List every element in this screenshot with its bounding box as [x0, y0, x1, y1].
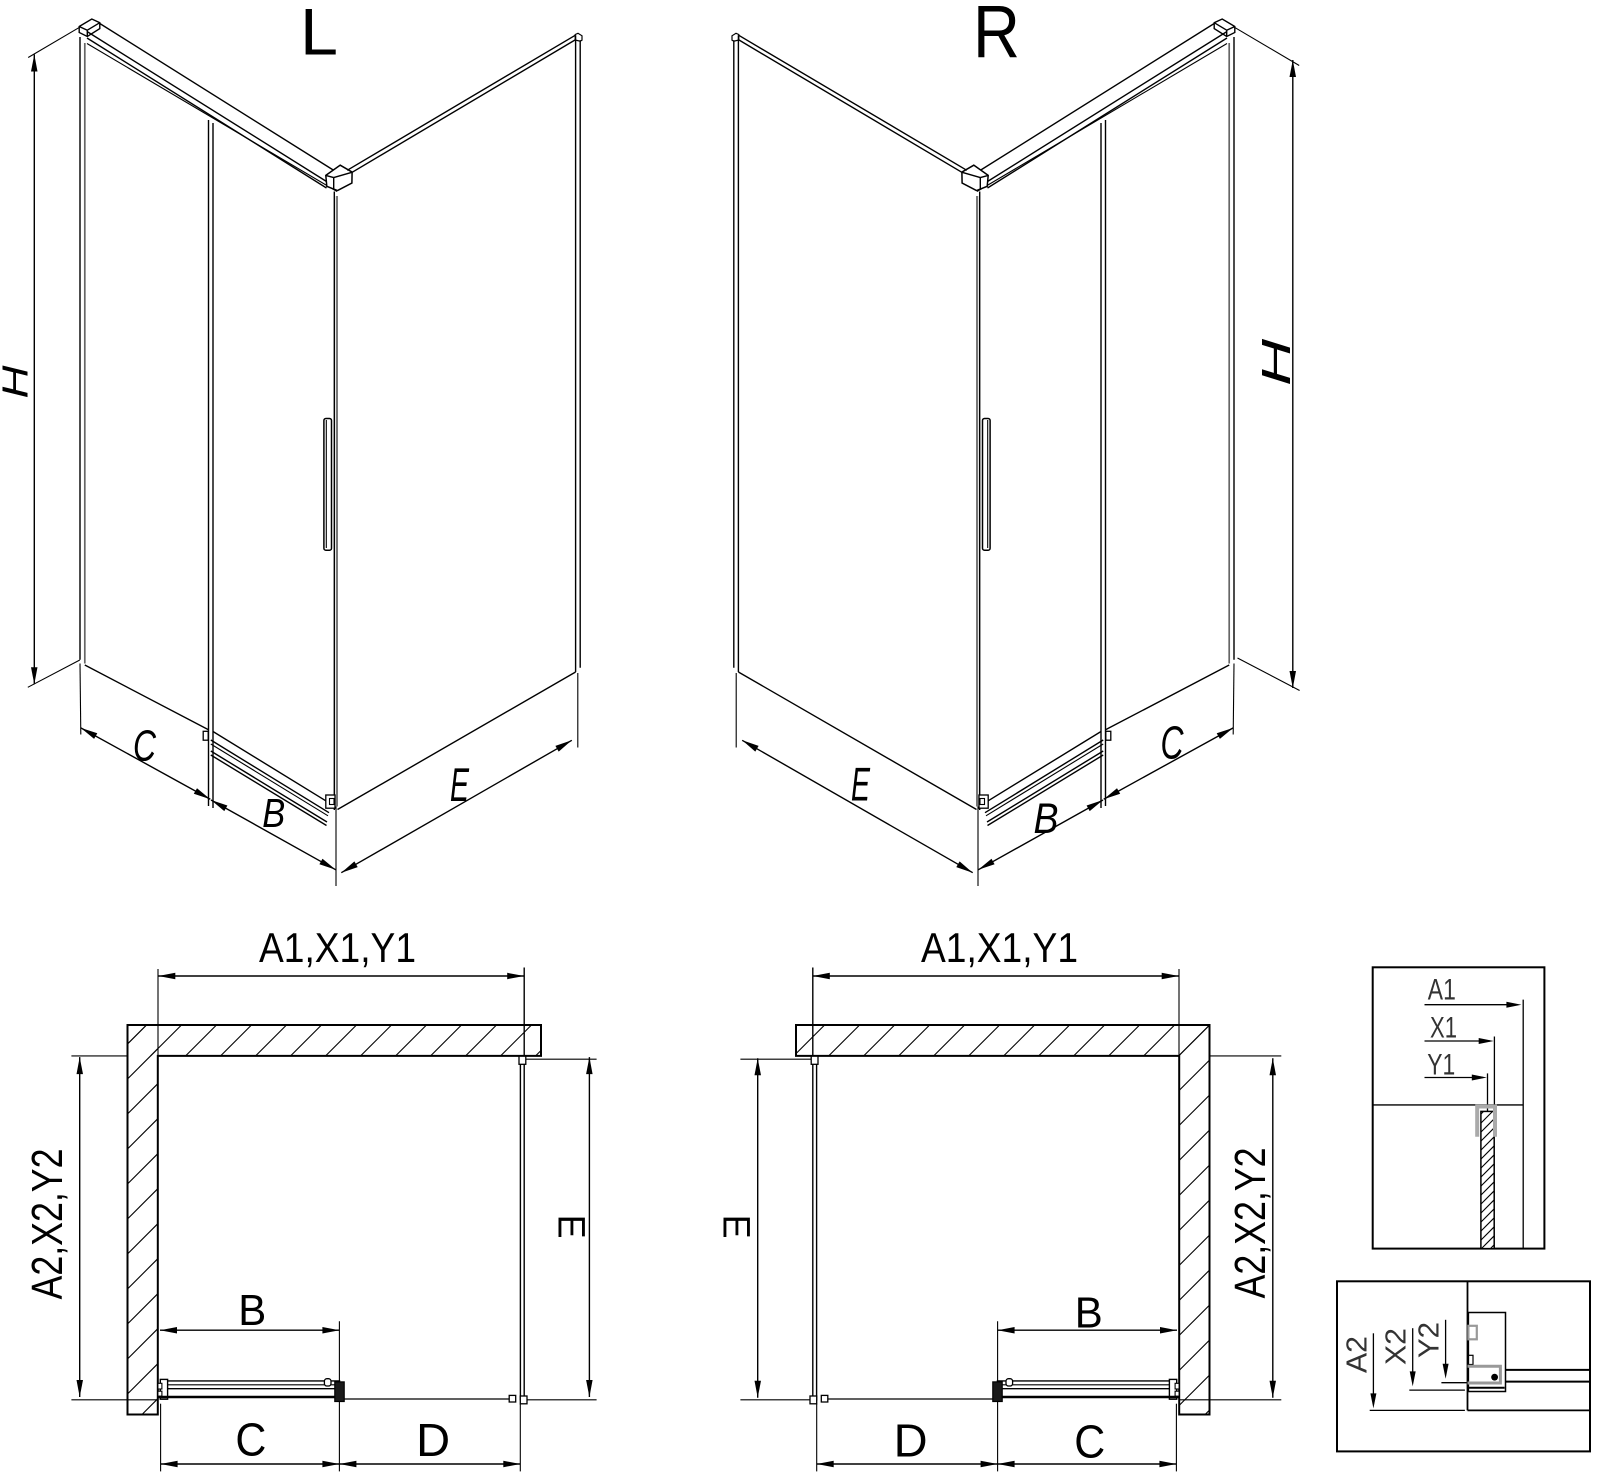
svg-text:B: B — [1034, 795, 1059, 843]
svg-text:D: D — [416, 1414, 450, 1466]
svg-text:B: B — [262, 790, 285, 836]
svg-text:A1,X1,Y1: A1,X1,Y1 — [921, 924, 1078, 971]
svg-text:A1: A1 — [1428, 974, 1456, 1007]
svg-text:A1,X1,Y1: A1,X1,Y1 — [259, 924, 416, 971]
svg-text:Y1: Y1 — [1427, 1049, 1455, 1082]
svg-text:E: E — [550, 1215, 592, 1239]
svg-text:R: R — [973, 0, 1020, 73]
svg-text:A2,X2,Y2: A2,X2,Y2 — [1226, 1148, 1275, 1299]
svg-text:C: C — [1161, 717, 1185, 769]
svg-text:D: D — [894, 1415, 928, 1467]
svg-text:B: B — [1075, 1289, 1103, 1338]
svg-text:H: H — [0, 364, 36, 398]
svg-text:E: E — [450, 758, 469, 811]
svg-text:A2,X2,Y2: A2,X2,Y2 — [23, 1149, 72, 1300]
svg-text:B: B — [238, 1286, 266, 1335]
svg-text:E: E — [715, 1215, 757, 1239]
svg-text:C: C — [133, 722, 157, 771]
svg-text:C: C — [235, 1414, 266, 1466]
svg-text:Y2: Y2 — [1414, 1322, 1446, 1358]
svg-text:X1: X1 — [1430, 1012, 1457, 1045]
svg-text:H: H — [1253, 338, 1299, 386]
svg-text:C: C — [1074, 1416, 1105, 1468]
svg-text:E: E — [851, 758, 870, 811]
svg-text:L: L — [300, 0, 338, 69]
svg-text:X2: X2 — [1381, 1328, 1413, 1365]
svg-text:A2: A2 — [1342, 1336, 1374, 1373]
